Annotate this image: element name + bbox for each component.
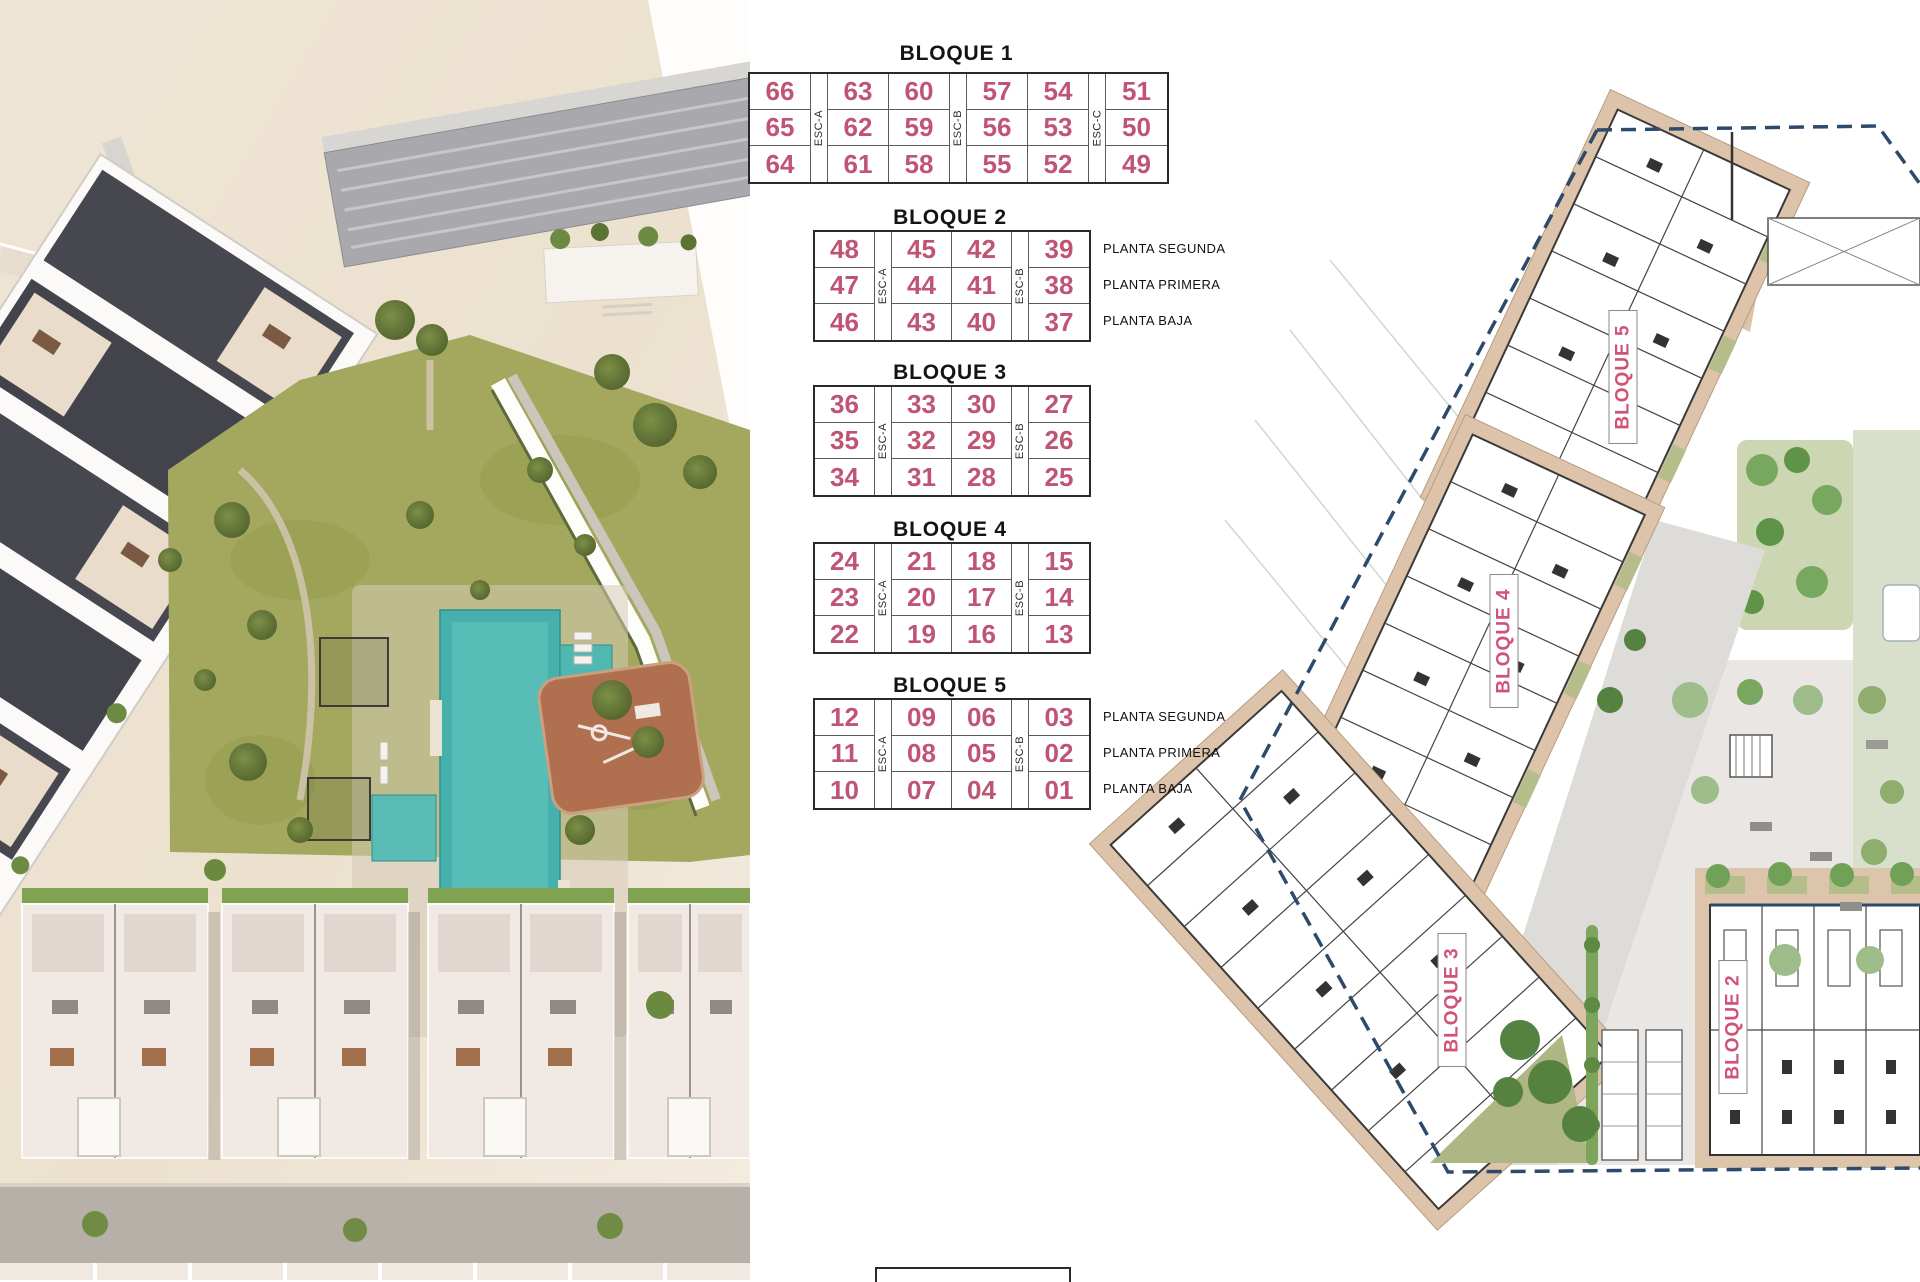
- unit-number-cell: 44: [892, 268, 952, 304]
- floor-label: PLANTA PRIMERA: [1103, 734, 1220, 770]
- bloque-table: 666564ESC-A636261605958ESC-B575655545352…: [748, 72, 1169, 184]
- unit-number-cell: 18: [952, 544, 1012, 580]
- unit-number-cell: 04: [952, 772, 1012, 808]
- unit-number-cell: 57: [967, 74, 1028, 110]
- stairwell-cell: ESC-A: [811, 74, 828, 182]
- stairwell-cell: ESC-B: [950, 74, 967, 182]
- bloque-table-title: BLOQUE 2: [813, 206, 1087, 230]
- unit-number-cell: 27: [1029, 387, 1089, 423]
- unit-number-cell: 09: [892, 700, 952, 736]
- bloque-table-title: BLOQUE 5: [813, 674, 1087, 698]
- stairwell-cell: ESC-C: [1089, 74, 1106, 182]
- unit-number-cell: 29: [952, 423, 1012, 459]
- unit-number-cell: 48: [815, 232, 875, 268]
- unit-number-cell: 63: [828, 74, 889, 110]
- unit-number-cell: 12: [815, 700, 875, 736]
- stairwell-label: ESC-C: [1091, 110, 1103, 147]
- unit-number-cell: 56: [967, 110, 1028, 146]
- unit-number-cell: 23: [815, 580, 875, 616]
- unit-number-cell: 10: [815, 772, 875, 808]
- unit-number-cell: 02: [1029, 736, 1089, 772]
- unit-number-cell: 46: [815, 304, 875, 340]
- unit-number-cell: 05: [952, 736, 1012, 772]
- bloque-table-title: BLOQUE 3: [813, 361, 1087, 385]
- unit-number-cell: 40: [952, 304, 1012, 340]
- stairwell-cell: ESC-A: [875, 232, 892, 340]
- stairwell-label: ESC-A: [877, 736, 889, 772]
- ramp-structure: [1768, 218, 1920, 285]
- stairwell-label: ESC-B: [1014, 268, 1026, 304]
- unit-number-cell: 37: [1029, 304, 1089, 340]
- unit-number-cell: 66: [750, 74, 811, 110]
- plan-bloque-label: BLOQUE 5: [1609, 310, 1638, 444]
- unit-number-cell: 34: [815, 459, 875, 495]
- unit-number-cell: 16: [952, 616, 1012, 652]
- bloque-table-title: BLOQUE 4: [813, 518, 1087, 542]
- unit-number-cell: 62: [828, 110, 889, 146]
- unit-number-cell: 33: [892, 387, 952, 423]
- bloque-table: 484746ESC-A454443424140ESC-B393837: [813, 230, 1091, 342]
- stairwell-label: ESC-A: [813, 110, 825, 146]
- townhouse-blocks: [22, 888, 750, 904]
- unit-number-cell: 54: [1028, 74, 1089, 110]
- unit-number-cell: 17: [952, 580, 1012, 616]
- bloque-table: 121110ESC-A090807060504ESC-B030201: [813, 698, 1091, 810]
- unit-number-cell: 06: [952, 700, 1012, 736]
- floor-label: PLANTA BAJA: [1103, 302, 1192, 338]
- unit-number-cell: 50: [1106, 110, 1167, 146]
- unit-number-cell: 08: [892, 736, 952, 772]
- unit-number-cell: 51: [1106, 74, 1167, 110]
- unit-number-cell: 21: [892, 544, 952, 580]
- unit-number-cell: 30: [952, 387, 1012, 423]
- unit-number-cell: 01: [1029, 772, 1089, 808]
- floor-label: PLANTA PRIMERA: [1103, 266, 1220, 302]
- stairwell-cell: ESC-A: [875, 387, 892, 495]
- stairwell-cell: ESC-B: [1012, 387, 1029, 495]
- stairwell-label: ESC-B: [1014, 736, 1026, 772]
- stairwell-label: ESC-B: [952, 110, 964, 146]
- bottom-houses: [0, 1263, 750, 1280]
- unit-number-cell: 35: [815, 423, 875, 459]
- unit-number-cell: 45: [892, 232, 952, 268]
- unit-number-cell: 58: [889, 146, 950, 182]
- stairwell-label: ESC-A: [877, 268, 889, 304]
- unit-number-cell: 43: [892, 304, 952, 340]
- stairwell-label: ESC-A: [877, 423, 889, 459]
- unit-number-cell: 61: [828, 146, 889, 182]
- unit-number-cell: 41: [952, 268, 1012, 304]
- aerial-render: [0, 0, 750, 1280]
- stairwell-label: ESC-A: [877, 580, 889, 616]
- unit-number-cell: 32: [892, 423, 952, 459]
- stairwell-label: ESC-B: [1014, 580, 1026, 616]
- stairwell-cell: ESC-B: [1012, 700, 1029, 808]
- bloque-table: 363534ESC-A333231302928ESC-B272625: [813, 385, 1091, 497]
- floor-label: PLANTA BAJA: [1103, 770, 1192, 806]
- unit-number-cell: 39: [1029, 232, 1089, 268]
- unit-number-cell: 65: [750, 110, 811, 146]
- stairwell-cell: ESC-A: [875, 700, 892, 808]
- unit-number-cell: 19: [892, 616, 952, 652]
- unit-number-cell: 49: [1106, 146, 1167, 182]
- plan-bloque-label: BLOQUE 2: [1719, 960, 1748, 1094]
- garden-east: [1853, 430, 1920, 900]
- garden-ne: [1737, 440, 1853, 630]
- unit-number-cell: 53: [1028, 110, 1089, 146]
- bottom-road: [0, 1185, 750, 1263]
- unit-number-cell: 28: [952, 459, 1012, 495]
- unit-number-cell: 15: [1029, 544, 1089, 580]
- unit-number-cell: 24: [815, 544, 875, 580]
- unit-number-cell: 14: [1029, 580, 1089, 616]
- bloque-table-title: BLOQUE 1: [748, 42, 1165, 66]
- unit-number-cell: 22: [815, 616, 875, 652]
- floor-label: PLANTA SEGUNDA: [1103, 698, 1225, 734]
- unit-number-cell: 38: [1029, 268, 1089, 304]
- unit-number-cell: 31: [892, 459, 952, 495]
- unit-number-cell: 47: [815, 268, 875, 304]
- unit-number-cell: 03: [1029, 700, 1089, 736]
- unit-number-cell: 59: [889, 110, 950, 146]
- stairwell-cell: ESC-B: [1012, 544, 1029, 652]
- bloque-table: 242322ESC-A212019181716ESC-B151413: [813, 542, 1091, 654]
- unit-number-cell: 25: [1029, 459, 1089, 495]
- stairwell-cell: ESC-B: [1012, 232, 1029, 340]
- stairwell-label: ESC-B: [1014, 423, 1026, 459]
- unit-number-cell: 55: [967, 146, 1028, 182]
- plan-bloque-label: BLOQUE 3: [1438, 933, 1467, 1067]
- site-plan: [1050, 0, 1920, 1280]
- floor-label: PLANTA SEGUNDA: [1103, 230, 1225, 266]
- townhouse-units: [22, 904, 750, 1160]
- unit-number-cell: 13: [1029, 616, 1089, 652]
- unit-number-cell: 20: [892, 580, 952, 616]
- unit-number-cell: 11: [815, 736, 875, 772]
- unit-number-cell: 36: [815, 387, 875, 423]
- stairwell-cell: ESC-A: [875, 544, 892, 652]
- plan-bloque-label: BLOQUE 4: [1490, 574, 1519, 708]
- unit-number-cell: 42: [952, 232, 1012, 268]
- unit-number-cell: 64: [750, 146, 811, 182]
- unit-number-cell: 52: [1028, 146, 1089, 182]
- unit-number-cell: 26: [1029, 423, 1089, 459]
- unit-number-cell: 60: [889, 74, 950, 110]
- unit-number-cell: 07: [892, 772, 952, 808]
